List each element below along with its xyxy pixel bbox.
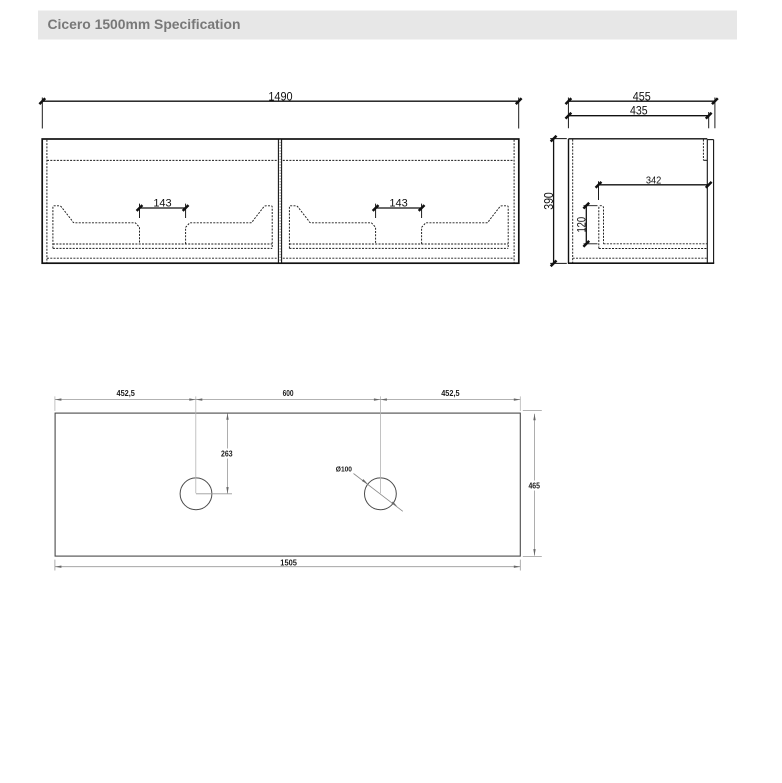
svg-text:390: 390 <box>542 192 556 210</box>
svg-text:120: 120 <box>576 217 588 233</box>
svg-text:1505: 1505 <box>280 559 297 568</box>
svg-text:143: 143 <box>153 197 171 209</box>
svg-text:455: 455 <box>633 91 651 103</box>
svg-text:342: 342 <box>646 175 662 186</box>
svg-text:263: 263 <box>221 450 233 459</box>
svg-text:Cicero 1500mm Specification: Cicero 1500mm Specification <box>48 16 241 32</box>
svg-text:435: 435 <box>630 106 648 118</box>
svg-text:1490: 1490 <box>268 91 292 103</box>
svg-text:452,5: 452,5 <box>441 389 460 398</box>
svg-text:Ø100: Ø100 <box>336 464 352 473</box>
svg-text:143: 143 <box>389 197 407 209</box>
svg-text:600: 600 <box>283 389 295 398</box>
svg-text:452,5: 452,5 <box>117 389 136 398</box>
svg-text:465: 465 <box>528 481 540 490</box>
